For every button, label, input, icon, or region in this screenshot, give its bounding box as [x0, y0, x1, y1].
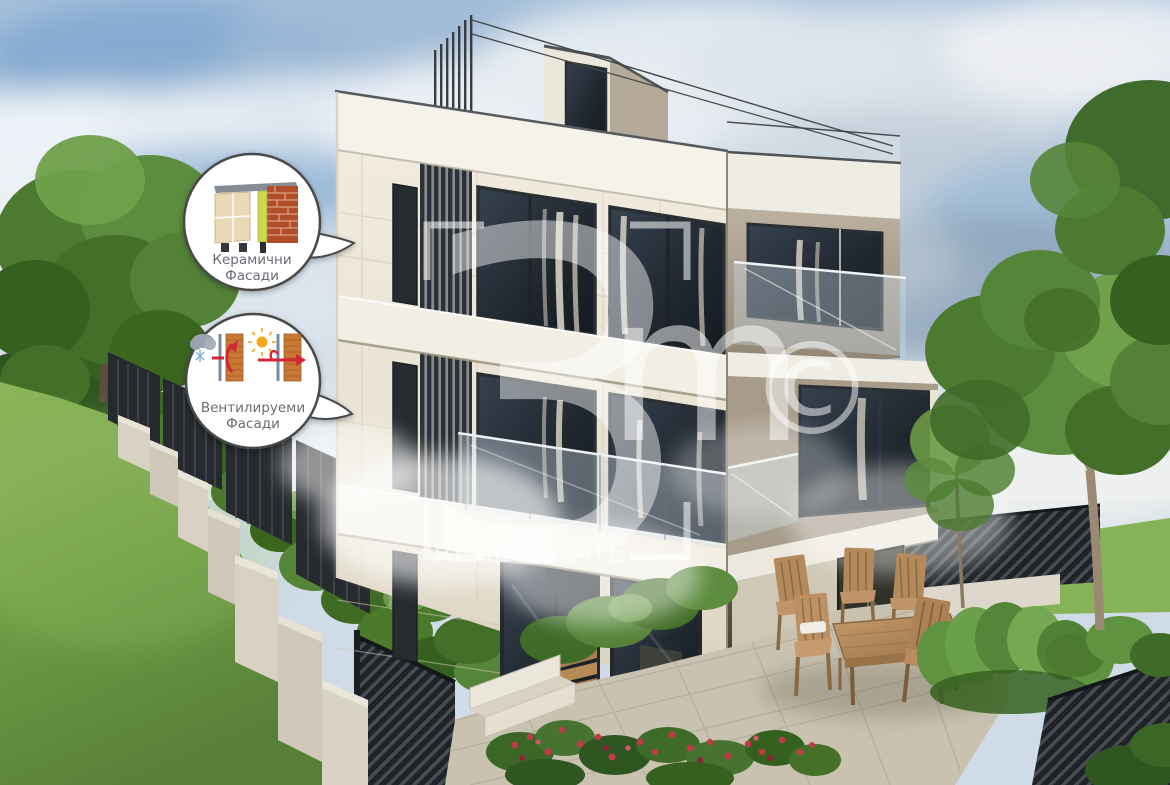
- badge-label-line2: Фасади: [225, 268, 279, 284]
- architectural-render: 3 m © REAL ESTATE: [0, 0, 1170, 785]
- substructure-foot-icon: [221, 243, 229, 252]
- badge-label-line1: Вентилируеми: [201, 400, 305, 416]
- insulation-icon: [258, 191, 267, 242]
- seat-cushion: [800, 621, 827, 634]
- badge-label-line1: Керамични: [212, 252, 291, 268]
- planter-box: [1032, 616, 1170, 785]
- copyright-icon: ©: [748, 316, 876, 465]
- scene: 3 m © REAL ESTATE: [0, 0, 1170, 785]
- brick-column-icon: [226, 334, 243, 381]
- real-estate-label: REAL ESTATE: [433, 538, 627, 569]
- badge-label-line2: Фасади: [226, 416, 280, 432]
